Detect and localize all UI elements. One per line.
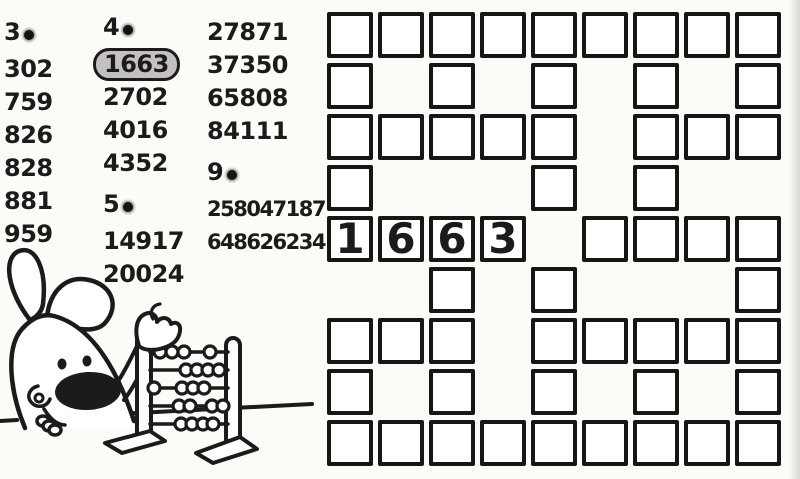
clue-number: 65808 xyxy=(207,82,325,115)
grid-cell[interactable] xyxy=(735,267,781,313)
grid-cell[interactable] xyxy=(633,420,679,466)
grid-cell[interactable] xyxy=(531,420,577,466)
grid-cell[interactable] xyxy=(378,420,424,466)
clue-number: 759 xyxy=(4,86,53,119)
rabbit-hand-on-abacus xyxy=(136,313,180,350)
page-edge-shadow xyxy=(789,0,800,479)
grid-cell[interactable] xyxy=(684,420,730,466)
grid-cell[interactable] xyxy=(429,420,475,466)
grid-cell[interactable] xyxy=(531,63,577,109)
digit-count-label: 9 xyxy=(207,158,223,186)
grid-cell[interactable] xyxy=(480,114,526,160)
abacus-foot-left xyxy=(105,431,165,453)
digit-count-label: 5 xyxy=(103,190,119,218)
grid-cell[interactable] xyxy=(429,63,475,109)
grid-cell-prefilled: 6 xyxy=(429,216,475,262)
grid-cell[interactable] xyxy=(429,318,475,364)
grid-cell[interactable] xyxy=(735,369,781,415)
grid-cell[interactable] xyxy=(378,114,424,160)
grid-cell[interactable] xyxy=(429,114,475,160)
grid-cell[interactable] xyxy=(582,420,628,466)
grid-cell[interactable] xyxy=(735,63,781,109)
digit-count-label: 4 xyxy=(103,13,119,41)
grid-cell[interactable] xyxy=(480,12,526,58)
rabbit-eye-right xyxy=(83,356,92,367)
grid-cell[interactable] xyxy=(327,63,373,109)
grid-cell[interactable] xyxy=(633,114,679,160)
grid-cell[interactable] xyxy=(633,63,679,109)
grid-cell[interactable] xyxy=(480,420,526,466)
bullet-dot-icon xyxy=(123,202,133,212)
grid-cell[interactable] xyxy=(684,318,730,364)
clue-number: 4352 xyxy=(103,147,184,180)
digit-count-header-3: 3 xyxy=(4,16,53,49)
digit-count-header-5: 5 xyxy=(103,188,184,221)
grid-cell[interactable] xyxy=(582,318,628,364)
abacus-foot-right xyxy=(196,437,257,463)
grid-cell-prefilled: 1 xyxy=(327,216,373,262)
clue-number: 258047187 xyxy=(207,193,325,226)
abacus-post-right xyxy=(226,338,240,452)
grid-cell[interactable] xyxy=(582,12,628,58)
digit-count-header-9: 9 xyxy=(207,156,325,189)
grid-cell[interactable] xyxy=(327,114,373,160)
grid-cell[interactable] xyxy=(378,318,424,364)
grid-cell[interactable] xyxy=(633,216,679,262)
clue-number: 4016 xyxy=(103,114,184,147)
clue-number-highlighted: 1663 xyxy=(93,48,180,81)
grid-cell[interactable] xyxy=(684,12,730,58)
grid-cell[interactable] xyxy=(633,165,679,211)
rabbit-abacus-illustration xyxy=(0,230,316,479)
grid-cell[interactable] xyxy=(735,318,781,364)
digit-count-label: 3 xyxy=(4,18,20,46)
digit-count-header-4: 4 xyxy=(103,11,184,44)
grid-cell[interactable] xyxy=(531,267,577,313)
grid-cell[interactable] xyxy=(327,318,373,364)
grid-cell-prefilled: 6 xyxy=(378,216,424,262)
clue-number: 881 xyxy=(4,185,53,218)
grid-cell[interactable] xyxy=(531,165,577,211)
grid-cell[interactable] xyxy=(684,216,730,262)
grid-cell[interactable] xyxy=(531,318,577,364)
abacus xyxy=(105,304,257,463)
grid-cell[interactable] xyxy=(633,12,679,58)
grid-cell[interactable] xyxy=(327,369,373,415)
grid-cell[interactable] xyxy=(735,216,781,262)
clue-number: 37350 xyxy=(207,49,325,82)
grid-cell[interactable] xyxy=(429,267,475,313)
grid-cell[interactable] xyxy=(429,12,475,58)
rabbit-ear-left xyxy=(9,250,44,320)
clue-number: 27871 xyxy=(207,16,325,49)
clue-column-3digit: 3302759826828881959 xyxy=(4,16,53,251)
clue-number: 826 xyxy=(4,119,53,152)
grid-cell[interactable] xyxy=(633,318,679,364)
clue-column-5-9digit: 278713735065808841119258047187648626234 xyxy=(207,16,325,259)
grid-cell[interactable] xyxy=(735,114,781,160)
grid-cell[interactable] xyxy=(531,369,577,415)
grid-cell[interactable] xyxy=(684,114,730,160)
grid-cell[interactable] xyxy=(327,420,373,466)
worksheet-page: 3302759826828881959 41663270240164352514… xyxy=(0,0,800,479)
rabbit-finger xyxy=(49,425,61,435)
grid-cell[interactable] xyxy=(531,12,577,58)
grid-cell[interactable] xyxy=(582,216,628,262)
rabbit-eye-left xyxy=(58,359,67,370)
bullet-dot-icon xyxy=(24,30,34,40)
crossnumber-grid: 1663 xyxy=(327,12,781,466)
rabbit-figure xyxy=(9,250,152,435)
grid-cell[interactable] xyxy=(633,369,679,415)
grid-cell[interactable] xyxy=(531,114,577,160)
grid-cell[interactable] xyxy=(327,165,373,211)
grid-cell[interactable] xyxy=(429,369,475,415)
clue-number: 2702 xyxy=(103,81,184,114)
bullet-dot-icon xyxy=(123,25,133,35)
grid-cell[interactable] xyxy=(735,12,781,58)
clue-number: 302 xyxy=(4,53,53,86)
grid-cell[interactable] xyxy=(327,12,373,58)
grid-cell[interactable] xyxy=(378,12,424,58)
bullet-dot-icon xyxy=(227,170,237,180)
grid-cell[interactable] xyxy=(735,420,781,466)
clue-number: 84111 xyxy=(207,115,325,148)
clue-number: 828 xyxy=(4,152,53,185)
grid-cell-prefilled: 3 xyxy=(480,216,526,262)
clue-number: 1663 xyxy=(103,48,184,81)
